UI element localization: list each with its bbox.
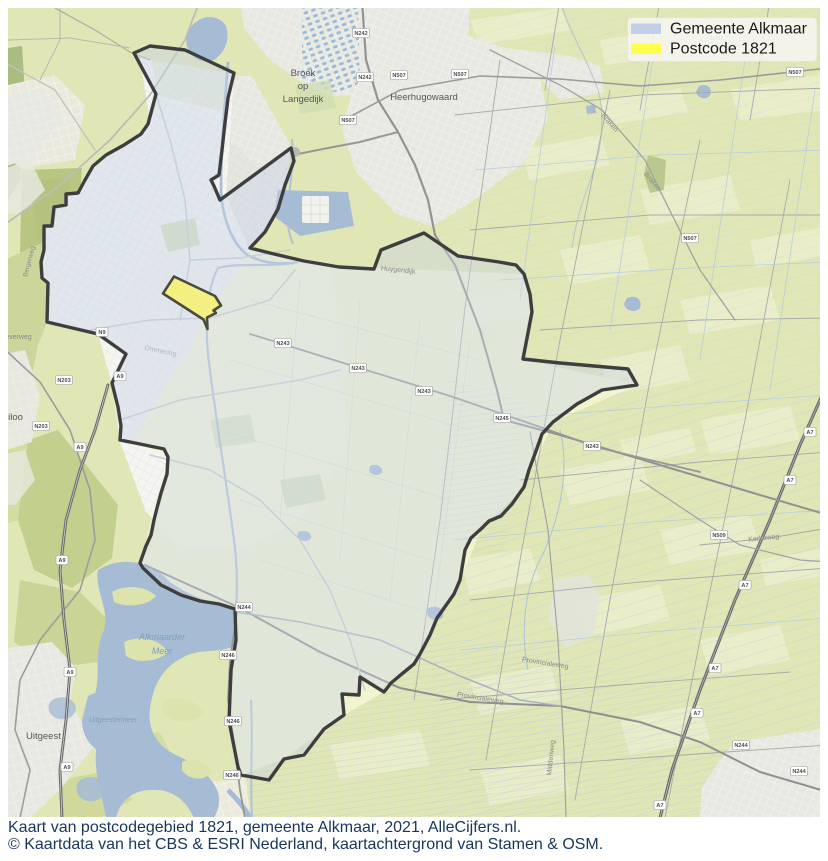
svg-text:N246: N246 [225,773,238,779]
svg-text:Postcode 1821: Postcode 1821 [670,41,777,58]
svg-text:A9: A9 [76,445,83,451]
svg-text:Gemeente Alkmaar: Gemeente Alkmaar [670,21,808,38]
svg-text:N244: N244 [734,743,748,749]
svg-text:N246: N246 [221,653,234,659]
svg-text:N246: N246 [226,719,239,725]
svg-text:N243: N243 [351,366,364,372]
svg-text:N242: N242 [354,31,367,37]
svg-text:Alkmaarder: Alkmaarder [138,632,186,642]
svg-text:N242: N242 [358,75,371,81]
svg-text:A9: A9 [63,765,70,771]
svg-text:A7: A7 [693,711,700,717]
svg-text:A7: A7 [711,666,718,672]
svg-text:N507: N507 [453,72,466,78]
svg-text:N509: N509 [712,533,725,539]
svg-text:N507: N507 [788,70,801,76]
svg-text:N203: N203 [57,378,70,384]
svg-text:Heerhugowaard: Heerhugowaard [390,92,458,103]
svg-text:N243: N243 [276,341,289,347]
svg-text:Meer: Meer [152,646,174,656]
svg-text:Uitgeest: Uitgeest [26,731,61,742]
svg-text:A7: A7 [741,583,748,589]
svg-text:N203: N203 [34,424,47,430]
svg-text:A7: A7 [786,478,793,484]
svg-text:N244: N244 [792,769,806,775]
svg-text:A7: A7 [806,430,813,436]
svg-text:op: op [298,81,309,92]
svg-text:Broek: Broek [291,68,316,79]
svg-text:N245: N245 [495,416,508,422]
svg-text:N243: N243 [417,389,430,395]
svg-text:N507: N507 [392,73,405,79]
svg-text:N507: N507 [683,236,696,242]
svg-text:A9: A9 [58,558,65,564]
svg-text:N244: N244 [237,605,251,611]
svg-text:Langedijk: Langedijk [283,94,324,105]
svg-text:Uitgeestermeer: Uitgeestermeer [89,717,138,724]
svg-text:A9: A9 [116,374,123,380]
svg-text:N507: N507 [341,118,354,124]
svg-text:A9: A9 [66,670,73,676]
svg-text:N9: N9 [98,330,105,336]
svg-text:N243: N243 [585,444,598,450]
svg-text:A7: A7 [656,803,663,809]
